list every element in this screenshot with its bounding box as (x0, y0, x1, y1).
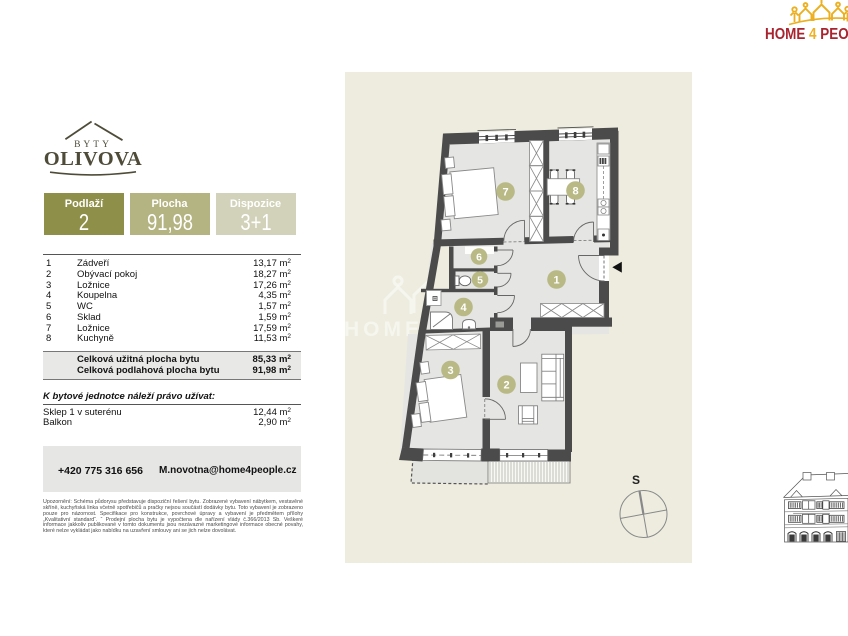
svg-text:6: 6 (476, 251, 482, 263)
svg-text:S: S (632, 473, 640, 487)
svg-text:4: 4 (460, 302, 467, 314)
svg-text:2: 2 (503, 380, 509, 392)
svg-text:3: 3 (447, 365, 453, 377)
svg-text:1: 1 (553, 275, 559, 287)
svg-text:8: 8 (572, 186, 578, 198)
svg-text:5: 5 (477, 274, 483, 286)
svg-text:7: 7 (502, 187, 508, 199)
